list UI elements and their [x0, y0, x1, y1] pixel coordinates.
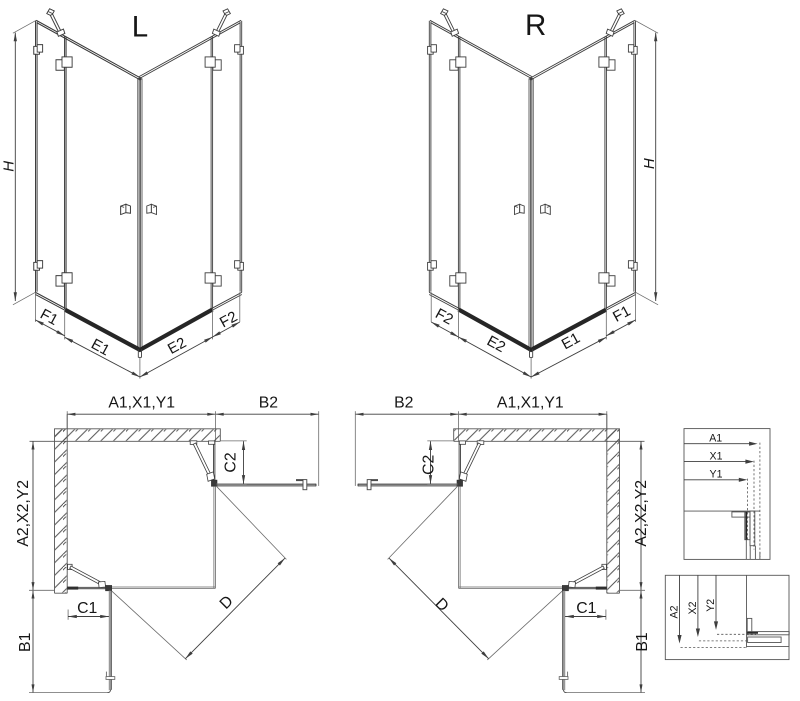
svg-text:C1: C1	[77, 600, 97, 617]
svg-text:C2: C2	[222, 452, 239, 472]
svg-text:A2,X2,Y2: A2,X2,Y2	[15, 480, 32, 547]
svg-text:H: H	[641, 158, 658, 169]
svg-text:L: L	[132, 11, 148, 44]
svg-text:B2: B2	[259, 395, 278, 412]
svg-text:A1,X1,Y1: A1,X1,Y1	[497, 395, 564, 412]
svg-text:R: R	[525, 9, 546, 42]
svg-text:C2: C2	[421, 455, 438, 475]
svg-text:X2: X2	[687, 601, 699, 614]
svg-text:A2,X2,Y2: A2,X2,Y2	[633, 480, 650, 547]
svg-text:C1: C1	[576, 600, 596, 617]
svg-text:A1,X1,Y1: A1,X1,Y1	[108, 395, 175, 412]
svg-text:A1: A1	[709, 432, 722, 444]
svg-text:H: H	[1, 161, 18, 172]
svg-text:B1: B1	[634, 632, 651, 652]
svg-text:Y1: Y1	[710, 469, 723, 481]
svg-text:X1: X1	[710, 450, 723, 462]
svg-text:B1: B1	[17, 632, 34, 652]
svg-text:B2: B2	[394, 395, 413, 412]
svg-text:A2: A2	[668, 605, 680, 618]
svg-text:Y2: Y2	[705, 599, 717, 612]
